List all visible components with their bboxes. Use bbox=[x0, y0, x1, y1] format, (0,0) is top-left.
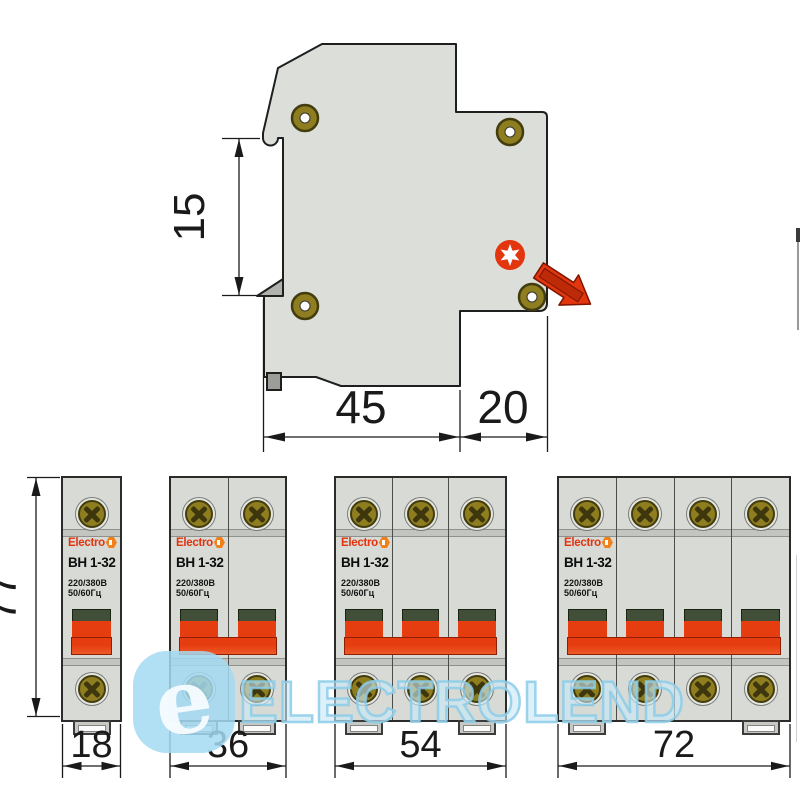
rivet-icon bbox=[292, 105, 318, 131]
dim-15 bbox=[222, 139, 260, 296]
dimension-drawing-svg: 15 45 20 77 bbox=[0, 0, 800, 800]
dim-45-label: 45 bbox=[335, 381, 386, 433]
dim-54-label: 54 bbox=[399, 724, 441, 766]
technical-drawing-page: 15 45 20 77 bbox=[0, 0, 800, 800]
dim-36-label: 36 bbox=[207, 724, 249, 766]
din-clip-catch bbox=[257, 279, 283, 296]
rivet-icon bbox=[497, 119, 523, 145]
rivet-icon bbox=[292, 293, 318, 319]
dim-72-label: 72 bbox=[653, 724, 695, 766]
dim-77 bbox=[27, 478, 60, 717]
dim-20-label: 20 bbox=[477, 381, 528, 433]
dim-18-label: 18 bbox=[70, 724, 112, 766]
rivet-icon bbox=[519, 284, 545, 310]
dim-77-label: 77 bbox=[0, 573, 26, 622]
side-profile-outline bbox=[263, 44, 547, 386]
dim-15-label: 15 bbox=[165, 193, 214, 242]
torx-screw-icon bbox=[495, 240, 525, 270]
breaker-side-profile bbox=[257, 44, 600, 390]
din-clip-slider bbox=[267, 373, 281, 390]
